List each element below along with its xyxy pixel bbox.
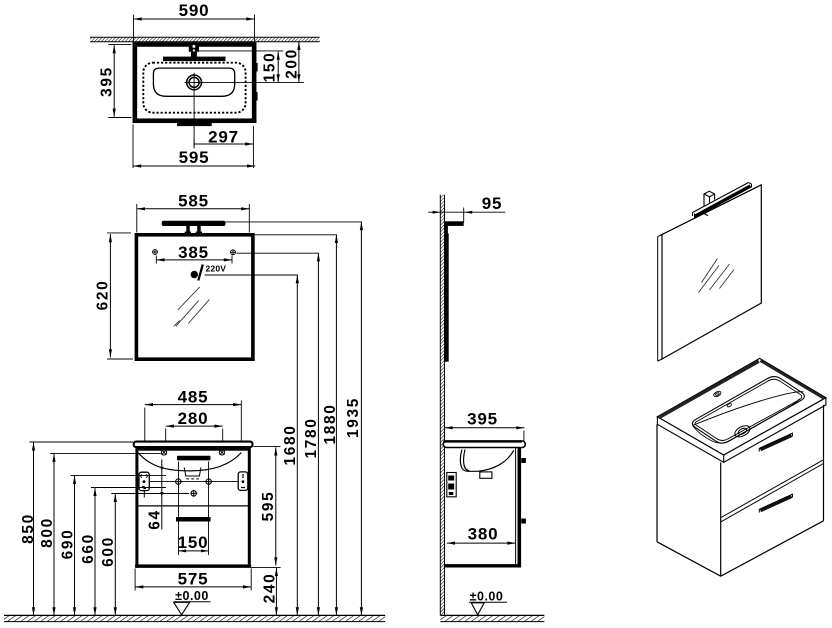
svg-text:385: 385 <box>178 243 209 262</box>
svg-text:95: 95 <box>482 194 503 213</box>
svg-text:1880: 1880 <box>322 404 339 445</box>
svg-text:690: 690 <box>59 529 76 560</box>
svg-text:240: 240 <box>261 573 278 604</box>
svg-text:600: 600 <box>100 536 117 567</box>
svg-text:297: 297 <box>208 127 239 146</box>
svg-text:575: 575 <box>178 569 209 588</box>
svg-text:590: 590 <box>179 1 210 20</box>
svg-text:485: 485 <box>178 388 209 407</box>
svg-text:200: 200 <box>283 48 300 79</box>
svg-text:800: 800 <box>39 517 56 548</box>
svg-text:660: 660 <box>80 533 97 564</box>
svg-text:±0.00: ±0.00 <box>175 589 209 603</box>
svg-text:220V: 220V <box>206 264 227 274</box>
svg-text:380: 380 <box>468 525 499 544</box>
svg-text:595: 595 <box>179 148 210 167</box>
svg-text:1935: 1935 <box>345 397 362 438</box>
svg-text:395: 395 <box>467 409 498 428</box>
svg-text:150: 150 <box>261 52 278 83</box>
svg-text:395: 395 <box>98 66 115 97</box>
svg-text:1680: 1680 <box>282 425 299 466</box>
svg-text:150: 150 <box>178 533 209 552</box>
svg-text:1780: 1780 <box>303 418 320 459</box>
svg-text:595: 595 <box>260 491 277 522</box>
svg-text:850: 850 <box>20 513 37 544</box>
svg-text:620: 620 <box>94 280 111 311</box>
svg-text:64: 64 <box>146 509 163 529</box>
svg-text:±0.00: ±0.00 <box>470 590 504 604</box>
svg-text:585: 585 <box>178 191 209 210</box>
svg-text:280: 280 <box>178 409 209 428</box>
